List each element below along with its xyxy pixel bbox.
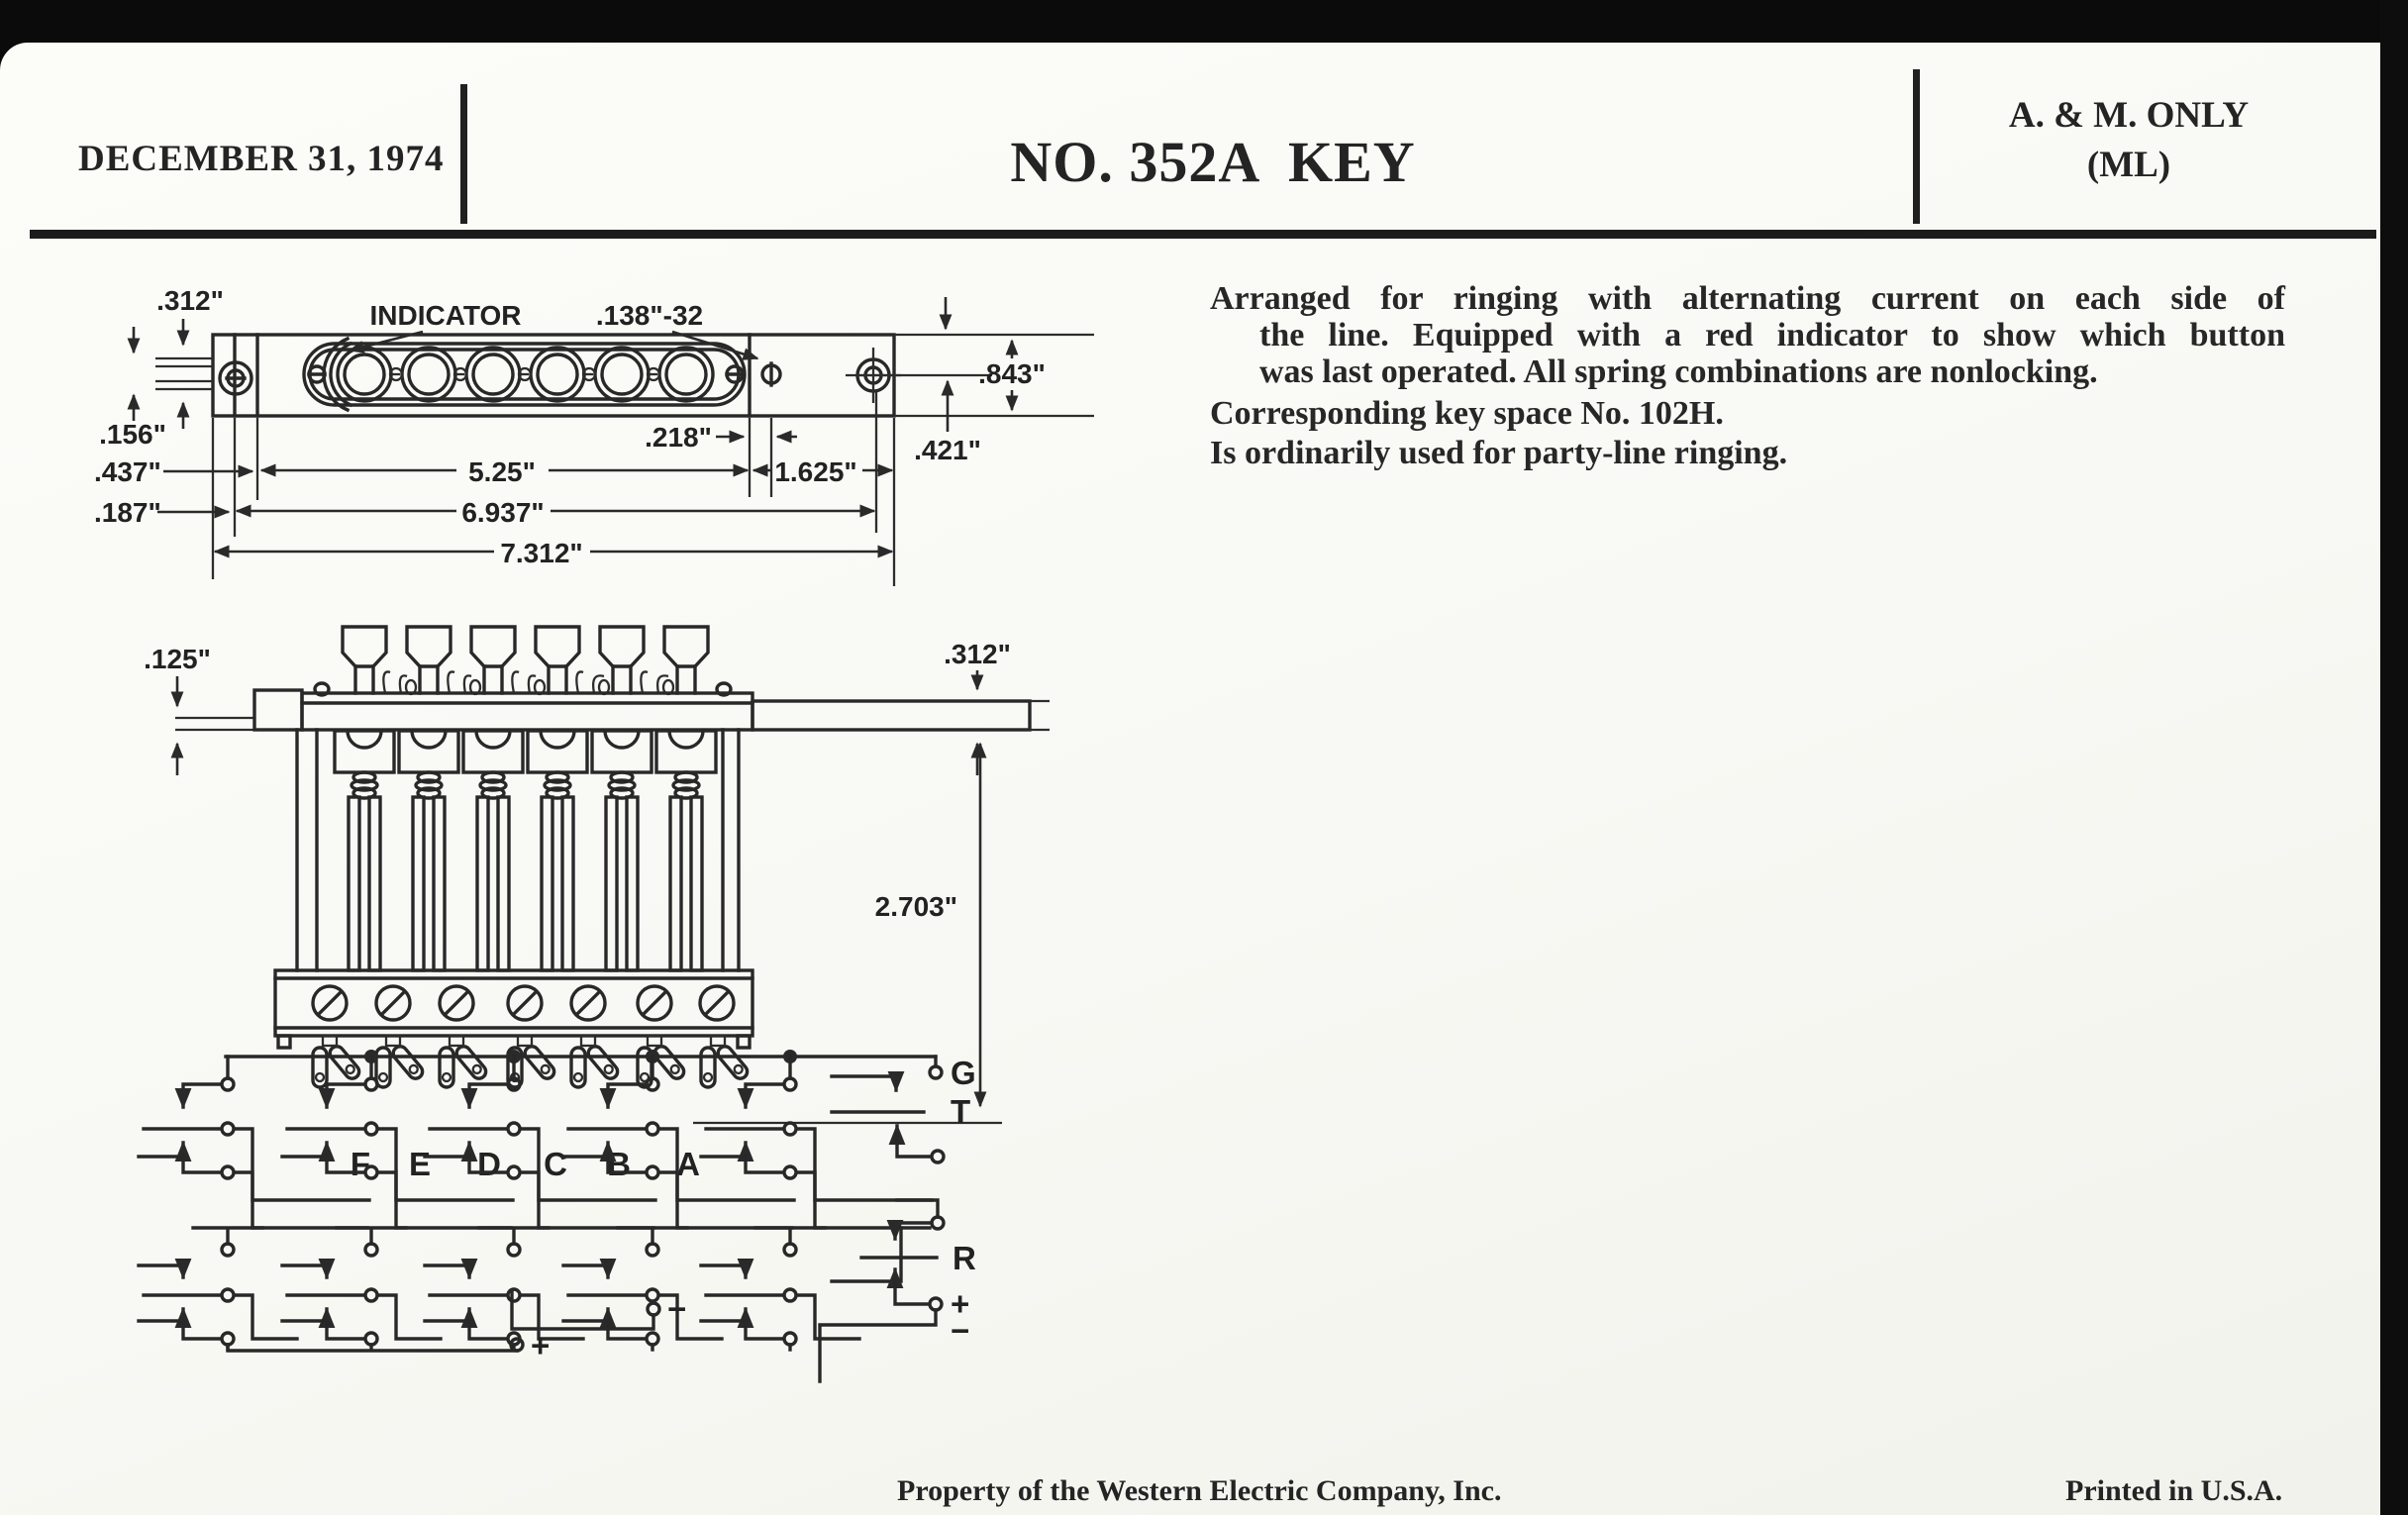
mid-minus-label: − [667, 1290, 686, 1327]
property-notice: Property of the Western Electric Company… [897, 1474, 1501, 1508]
tap-size-label: .138"-32 [596, 300, 703, 331]
description-paragraph: Arranged for ringing with alternating cu… [1210, 280, 2285, 390]
classification-block: A. & M. ONLY (ML) [1936, 91, 2322, 190]
classification-line1: A. & M. ONLY [1936, 91, 2322, 141]
dim-437-label: .437" [94, 456, 161, 487]
dim-843-label: .843" [978, 358, 1046, 389]
description-line: was last operated. All spring combinatio… [1210, 353, 2285, 390]
push-buttons [338, 348, 713, 401]
mounting-stud-lines [155, 358, 213, 389]
dim-525-label: 5.25" [468, 456, 536, 487]
circuit-schematic: G T R + − + − [139, 1040, 1010, 1416]
dim-125-label: .125" [144, 644, 211, 674]
plunger-assembly [335, 731, 394, 970]
dim-187-label: .187" [94, 497, 161, 528]
header-rule [30, 230, 2376, 239]
dim-6937-label: 6.937" [461, 497, 544, 528]
dim-2703-label: 2.703" [875, 891, 957, 922]
header-divider-left [460, 84, 467, 224]
dim-421-label: .421" [914, 435, 981, 465]
plan-view-drawing: .312" .156" INDICATOR .138"-32 .218" .84… [94, 287, 1104, 594]
indicator-label: INDICATOR [370, 300, 522, 331]
dim-156-label: .156" [99, 419, 166, 450]
mounting-plate [175, 690, 1030, 730]
dim-312-label: .312" [156, 285, 224, 316]
header-divider-right [1913, 69, 1920, 224]
printed-notice: Printed in U.S.A. [2065, 1474, 2282, 1508]
dim-218-label: .218" [645, 422, 712, 453]
dim-1625-label: 1.625" [774, 456, 856, 487]
dimension-labels: .312" .156" INDICATOR .138"-32 .218" .84… [94, 285, 1046, 568]
scanned-datasheet-page: DECEMBER 31, 1974 NO. 352A KEY A. & M. O… [0, 0, 2408, 1515]
description-line: the line. Equipped with a red indicator … [1210, 317, 2285, 353]
classification-line2: (ML) [1936, 141, 2322, 190]
spring-pileups [297, 730, 739, 970]
dim-312-side-label: .312" [944, 639, 1011, 669]
terminal-g-label: G [951, 1055, 976, 1091]
key-space-note: Corresponding key space No. 102H. [1210, 395, 1724, 433]
terminal-minus-label: − [951, 1312, 969, 1349]
terminal-column [820, 1057, 944, 1381]
schematic-labels: G T R + − + − [531, 1055, 976, 1363]
usage-note: Is ordinarily used for party-line ringin… [1210, 435, 1787, 472]
mid-plus-label: + [531, 1327, 550, 1363]
terminal-r-label: R [953, 1240, 976, 1276]
terminal-t-label: T [951, 1093, 970, 1130]
button-caps [343, 627, 708, 693]
page-title: NO. 352A KEY [1005, 129, 1421, 195]
dim-7312-label: 7.312" [500, 538, 582, 568]
issue-date: DECEMBER 31, 1974 [78, 138, 445, 180]
spring-contact-network [139, 1050, 936, 1351]
scan-edge-right [2380, 0, 2408, 1515]
description-line: Arranged for ringing with alternating cu… [1210, 280, 2285, 317]
terminal-screws [313, 986, 734, 1020]
